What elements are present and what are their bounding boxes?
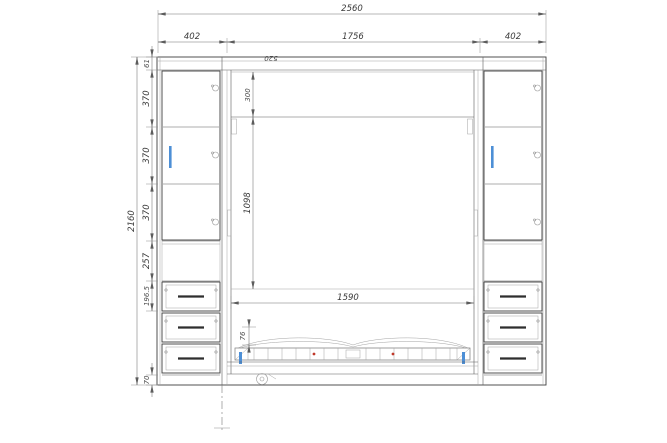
right-drawer-stack — [484, 282, 542, 373]
center-bed-section — [214, 72, 478, 431]
dim-label-section-2: 370 — [142, 147, 152, 163]
dim-label-section-3: 370 — [142, 204, 152, 220]
dim-label-edge-height: 76 — [239, 331, 247, 340]
red-marker — [392, 353, 395, 356]
left-door-handle[interactable] — [169, 146, 172, 168]
dim-label-section-1: 370 — [142, 90, 152, 106]
dimension-niche-chain: 300 1098 — [243, 72, 253, 289]
dim-label-bed-width: 1590 — [337, 293, 359, 303]
mattress-outline — [238, 338, 468, 348]
dim-label-top-offset: 300 — [244, 88, 252, 102]
dim-label-overall-height: 2160 — [127, 210, 137, 232]
folded-bed-platform — [227, 338, 478, 385]
red-marker — [313, 353, 316, 356]
technical-drawing: 2560 402 1756 402 2160 — [0, 0, 667, 443]
lift-mechanism-plate — [228, 210, 232, 236]
lift-mechanism-plate — [232, 119, 237, 134]
center-lock-detail — [346, 350, 360, 358]
dimension-bed-width: 1590 — [231, 293, 474, 309]
dim-label-left-width: 402 — [184, 32, 200, 42]
dim-label-plinth: 70 — [143, 375, 151, 384]
cabinet-carcass — [157, 57, 546, 385]
left-wardrobe-section — [162, 71, 220, 375]
dim-label-top-panel: 61 — [143, 59, 151, 68]
caster-wheel-icon — [257, 374, 268, 385]
dim-label-overall-width: 2560 — [341, 4, 363, 14]
dimension-overall-width: 2560 — [158, 4, 546, 53]
dim-label-niche-height: 1098 — [243, 192, 253, 214]
cabinet-outline — [157, 57, 546, 385]
left-drawer-stack — [162, 282, 220, 373]
dimension-top-segments: 402 1756 402 — [158, 32, 546, 53]
dim-label-shelf-section: 257 — [142, 252, 152, 269]
lift-mechanism-plate — [468, 119, 473, 134]
right-wardrobe-section — [484, 71, 542, 375]
right-door-handle[interactable] — [491, 146, 494, 168]
dim-label-drawer-height: 196.5 — [143, 285, 151, 306]
drawing-canvas: 2560 402 1756 402 2160 — [0, 0, 667, 443]
dim-label-center-width: 1756 — [342, 32, 364, 42]
dim-label-right-width: 402 — [505, 32, 521, 42]
dim-label-depth-note: 520 — [264, 54, 278, 62]
dimension-left-chain: 61 370 370 370 257 196.5 70 — [142, 46, 158, 397]
lift-mechanism-plate — [474, 210, 478, 236]
